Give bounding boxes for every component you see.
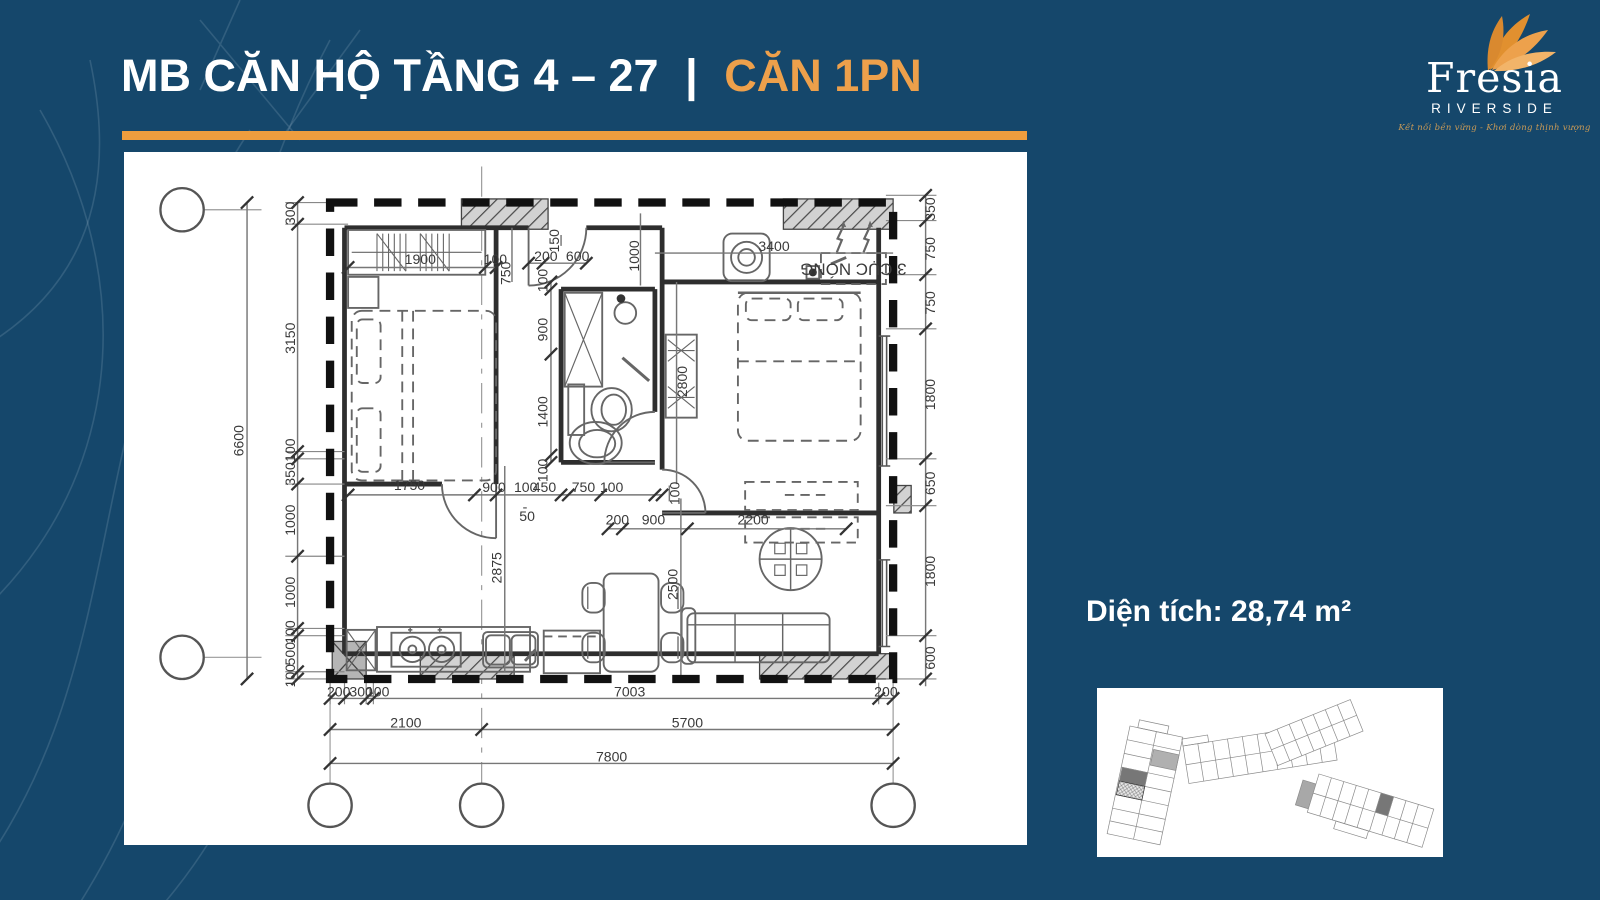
dim-label: 350 xyxy=(922,197,938,221)
dim-label: 1900 xyxy=(405,251,436,267)
dim-label: 2100 xyxy=(390,714,421,730)
dim-label: 650 xyxy=(922,471,938,495)
floor-plan-panel: 3003150100350100010001005001006600350750… xyxy=(124,152,1027,845)
dim-label: 2875 xyxy=(488,552,504,583)
dim-label: 100 xyxy=(534,269,550,293)
dim-label: 1400 xyxy=(534,396,550,427)
slide: MB CĂN HỘ TẦNG 4 – 27 | CĂN 1PN Fresia R… xyxy=(0,0,1600,900)
dim-label: 6600 xyxy=(231,425,247,456)
title-underline xyxy=(122,131,1027,140)
page-title: MB CĂN HỘ TẦNG 4 – 27 | CĂN 1PN xyxy=(121,50,922,102)
page-title-main: MB CĂN HỘ TẦNG 4 – 27 xyxy=(121,50,659,101)
dim-label: 900 xyxy=(482,479,506,495)
page-title-accent: CĂN 1PN xyxy=(724,50,922,101)
dim-label: 450 xyxy=(533,479,557,495)
dim-label: 200 xyxy=(327,683,351,699)
dim-label: 100 xyxy=(366,683,390,699)
dim-label: 2500 xyxy=(664,569,680,600)
dim-label: 5700 xyxy=(672,714,703,730)
page-title-separator: | xyxy=(685,50,698,101)
key-plan-drawing xyxy=(1097,688,1443,857)
dim-label: 1000 xyxy=(282,577,298,608)
dim-label: 600 xyxy=(922,646,938,670)
dim-label: 200 xyxy=(534,248,558,264)
dim-label: 1800 xyxy=(922,379,938,410)
dim-label: 750 xyxy=(922,291,938,315)
logo-brand-name: Fresia xyxy=(1392,58,1597,98)
dim-label: 750 xyxy=(498,261,514,285)
logo-brand-sub: RIVERSIDE xyxy=(1392,101,1597,116)
dim-label: 2200 xyxy=(737,512,768,528)
dim-label: 7003 xyxy=(614,683,645,699)
floor-plan-drawing: 3003150100350100010001005001006600350750… xyxy=(124,152,1027,845)
dim-label: 3400 xyxy=(758,238,789,254)
dim-label: 3150 xyxy=(282,322,298,353)
dim-label: 750 xyxy=(572,479,596,495)
dim-label: 50 xyxy=(519,508,535,524)
dim-label: 600 xyxy=(566,248,590,264)
dim-label: 7800 xyxy=(596,748,627,764)
brand-logo: Fresia RIVERSIDE Kết nối bền vững - Khơi… xyxy=(1392,8,1597,133)
dim-label: 100 xyxy=(667,482,683,506)
dim-label: 500 xyxy=(282,642,298,666)
dim-label: 2800 xyxy=(674,366,690,397)
dim-label: 100 xyxy=(600,479,624,495)
dim-label: 350 xyxy=(282,462,298,486)
dim-label: 100 xyxy=(282,438,298,462)
dim-label: 3 CỤC NÓNG xyxy=(800,259,906,278)
logo-tagline: Kết nối bền vững - Khơi dòng thịnh vượng xyxy=(1392,123,1597,133)
dim-label: 100 xyxy=(534,458,550,482)
key-plan-panel xyxy=(1097,688,1443,857)
dim-label: 300 xyxy=(282,201,298,225)
dim-label: 750 xyxy=(922,237,938,261)
dim-label: 100 xyxy=(282,620,298,644)
dim-label: 1750 xyxy=(394,477,425,493)
dim-label: 1800 xyxy=(922,556,938,587)
dim-label: 200 xyxy=(874,683,898,699)
area-info: Diện tích: 28,74 m² xyxy=(1086,595,1351,629)
dim-label: 900 xyxy=(534,318,550,342)
dim-label: 100 xyxy=(282,664,298,688)
dim-label: 1000 xyxy=(282,504,298,535)
dim-label: 900 xyxy=(642,512,666,528)
dim-label: 200 xyxy=(606,512,630,528)
dim-label: 1000 xyxy=(626,240,642,271)
